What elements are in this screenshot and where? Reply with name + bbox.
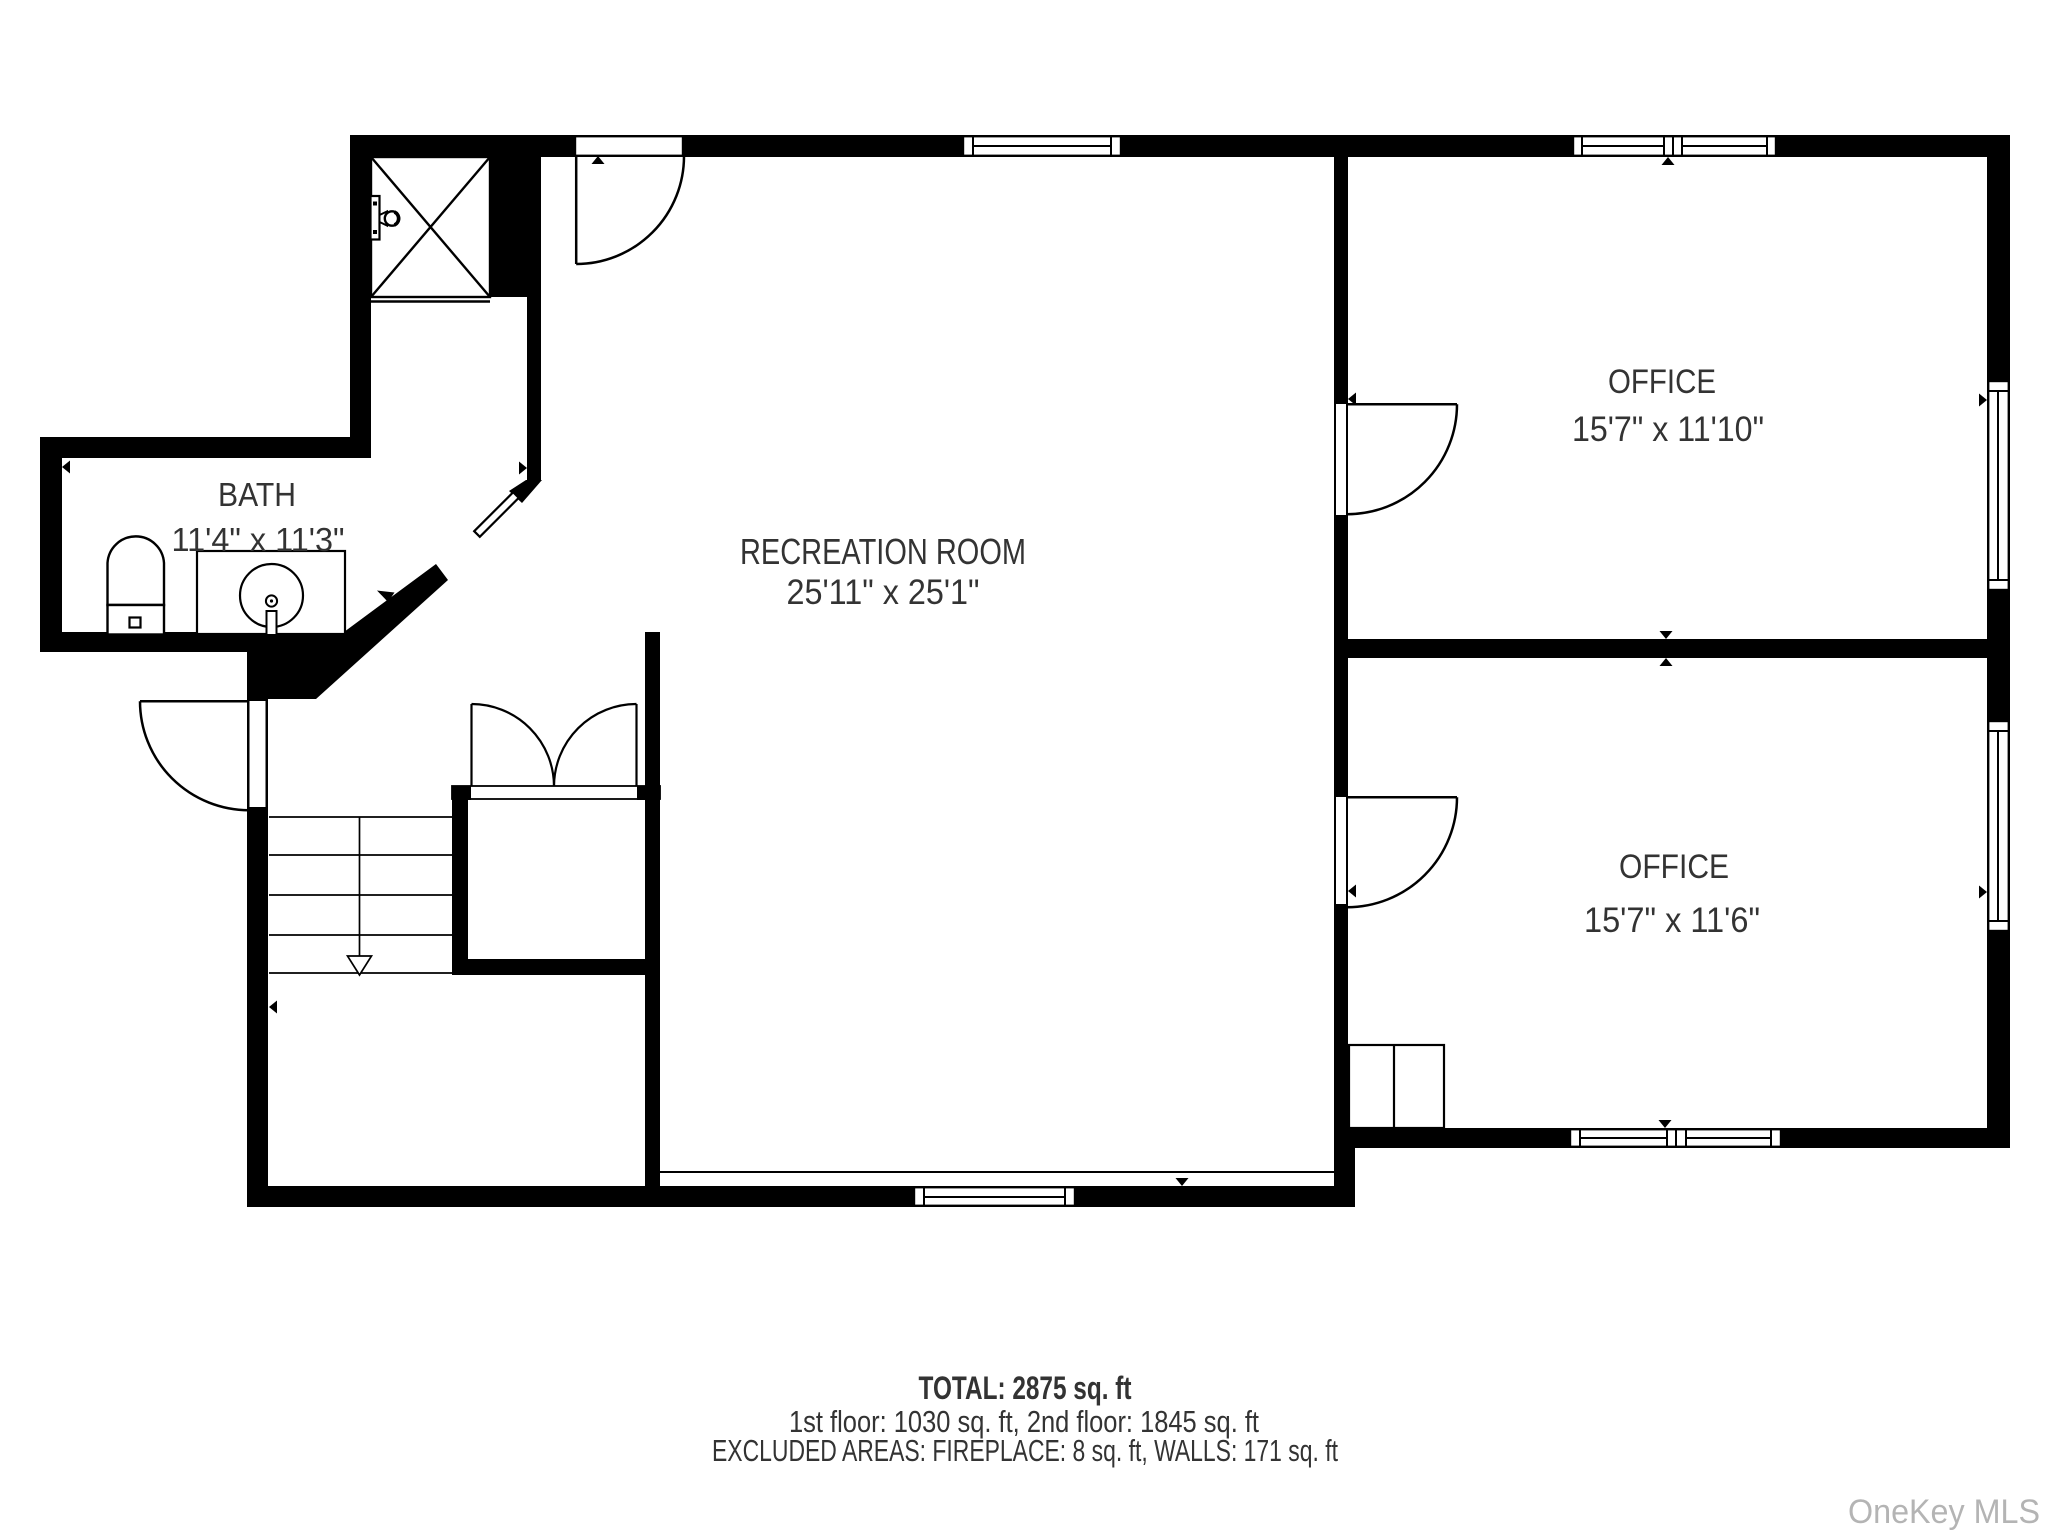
svg-text:15'7" x 11'6": 15'7" x 11'6"	[1584, 901, 1760, 940]
svg-text:25'11" x 25'1": 25'11" x 25'1"	[787, 573, 980, 612]
svg-text:15'7" x 11'10": 15'7" x 11'10"	[1572, 410, 1764, 449]
svg-text:OFFICE: OFFICE	[1619, 848, 1729, 886]
svg-text:EXCLUDED AREAS: FIREPLACE: 8 s: EXCLUDED AREAS: FIREPLACE: 8 sq. ft, WAL…	[712, 1433, 1338, 1468]
svg-text:11'4" x 11'3": 11'4" x 11'3"	[172, 521, 345, 558]
svg-text:OFFICE: OFFICE	[1608, 363, 1716, 401]
svg-text:BATH: BATH	[218, 476, 296, 513]
svg-text:RECREATION ROOM: RECREATION ROOM	[740, 531, 1026, 572]
svg-text:TOTAL: 2875 sq. ft: TOTAL: 2875 sq. ft	[919, 1370, 1132, 1406]
svg-text:OneKey MLS: OneKey MLS	[1848, 1493, 2040, 1531]
